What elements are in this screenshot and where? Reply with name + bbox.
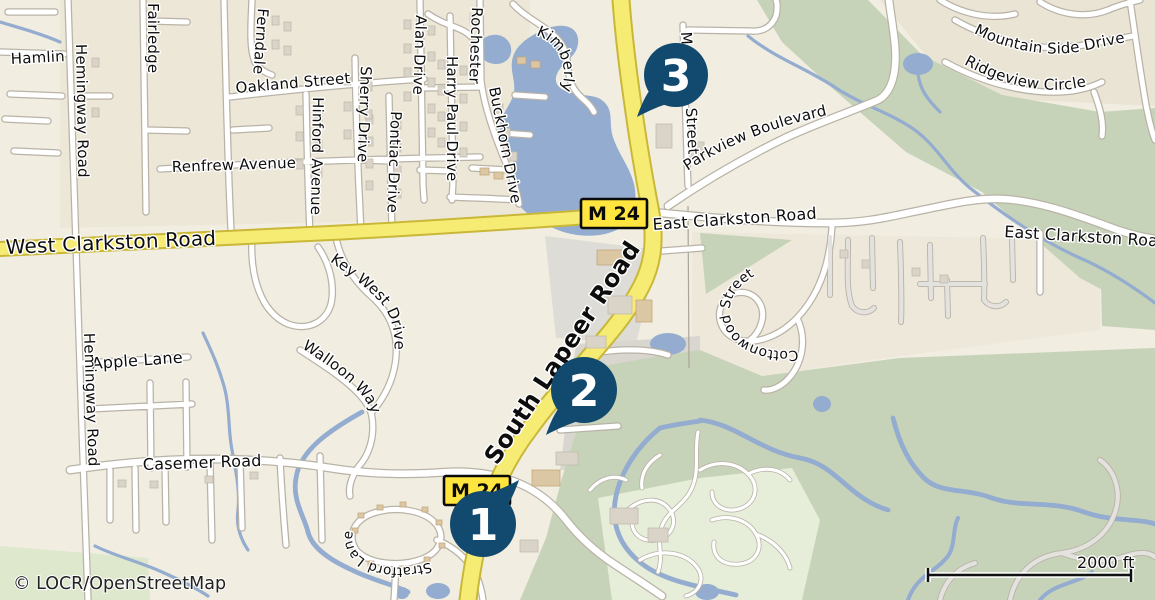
map-canvas[interactable]: Hamlin Hemingway Road Fairledge Ferndale… — [0, 0, 1155, 600]
scale-bar-label: 2000 ft — [1077, 553, 1134, 572]
marker-number: 2 — [569, 366, 600, 417]
street-label-harry-paul-drive: Harry Paul Drive — [443, 56, 461, 181]
street-label-hinford-avenue: Hinford Avenue — [307, 97, 327, 215]
street-label-fairledge: Fairledge — [144, 3, 162, 73]
street-label-pontiac-drive: Pontiac Drive — [383, 111, 405, 214]
map-attribution: © LOCR/OpenStreetMap — [13, 574, 226, 594]
street-label-sherry-drive: Sherry Drive — [354, 66, 375, 163]
pond — [903, 53, 933, 75]
marker-number: 3 — [661, 51, 692, 102]
pond — [813, 396, 831, 412]
street-label-rochester: Rochester — [465, 7, 486, 85]
street-label-alan-drive: Alan Drive — [409, 15, 430, 95]
street-label-hemingway-road: Hemingway Road — [72, 44, 92, 178]
marker-number: 1 — [468, 500, 499, 551]
forest-area — [1100, 242, 1155, 330]
route-shield-label: M 24 — [588, 203, 640, 225]
route-shield-m24-north: M 24 — [581, 199, 647, 228]
street-label-hamlin: Hamlin — [10, 47, 65, 68]
pond — [426, 583, 450, 599]
